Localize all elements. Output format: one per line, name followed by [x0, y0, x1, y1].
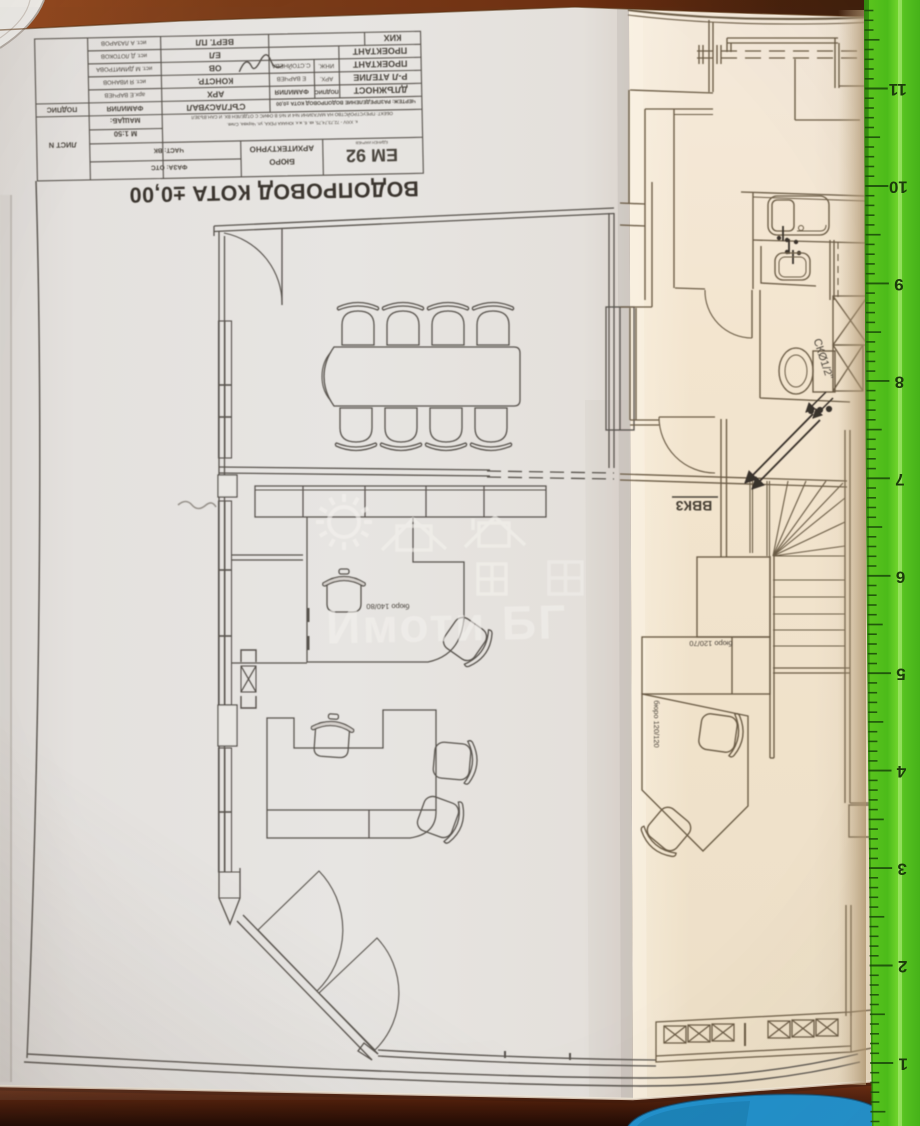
svg-text:1: 1 — [898, 1055, 907, 1074]
svg-text:10: 10 — [889, 177, 908, 196]
svg-text:11: 11 — [889, 80, 907, 99]
svg-text:7: 7 — [895, 470, 904, 489]
svg-text:4: 4 — [896, 762, 906, 781]
svg-text:5: 5 — [896, 665, 905, 684]
svg-text:6: 6 — [896, 567, 905, 586]
svg-text:9: 9 — [894, 275, 903, 294]
svg-text:2: 2 — [898, 957, 907, 976]
svg-text:8: 8 — [895, 372, 904, 391]
svg-text:3: 3 — [897, 860, 906, 879]
